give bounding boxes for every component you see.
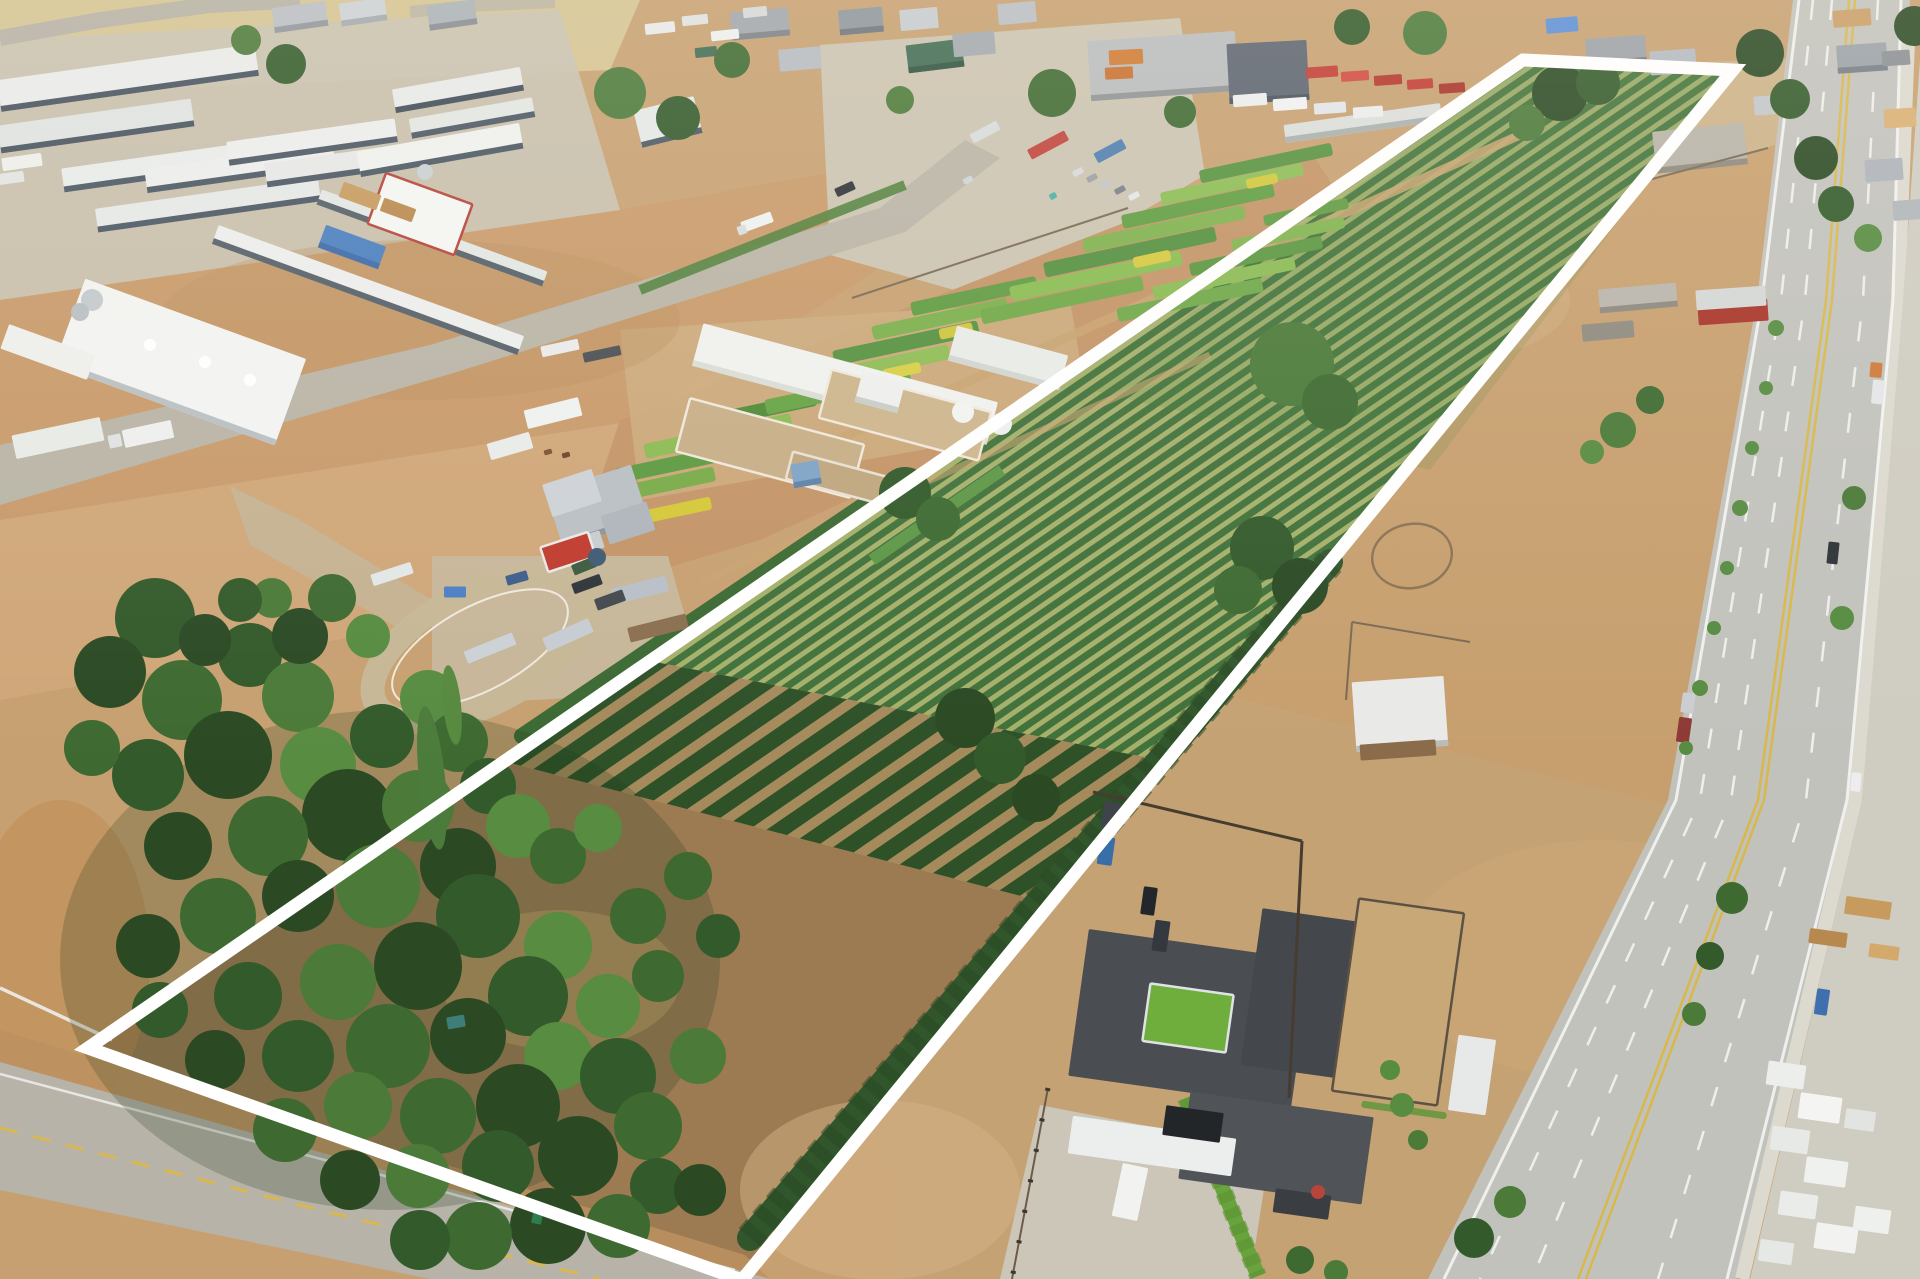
tree xyxy=(320,1150,380,1210)
modern-house xyxy=(1142,983,1233,1052)
tree xyxy=(1494,1186,1526,1218)
lumber-stack xyxy=(1758,1239,1795,1266)
tree xyxy=(610,888,666,944)
tree xyxy=(974,732,1026,784)
tree xyxy=(1600,412,1636,448)
tree xyxy=(656,96,700,140)
house-roof xyxy=(1545,16,1578,34)
tree xyxy=(1164,96,1196,128)
tree xyxy=(1390,1093,1414,1117)
truckyard-building xyxy=(1109,49,1144,66)
house-roof xyxy=(838,7,884,36)
truck-trailer xyxy=(1233,93,1268,107)
house-roof xyxy=(1892,199,1920,221)
tree xyxy=(1854,224,1882,252)
tree xyxy=(1302,374,1358,430)
tree xyxy=(1682,1002,1706,1026)
tree xyxy=(1580,440,1604,464)
tree xyxy=(674,1164,726,1216)
truck-trailer xyxy=(1871,380,1885,405)
lumber-stack xyxy=(1883,107,1916,128)
tree xyxy=(1770,79,1810,119)
tree xyxy=(308,574,356,622)
truck-trailer xyxy=(1353,105,1384,118)
tree xyxy=(1745,441,1759,455)
tree xyxy=(1794,136,1838,180)
tree xyxy=(112,739,184,811)
tree xyxy=(1214,566,1262,614)
truck-trailer xyxy=(1374,74,1403,86)
tree xyxy=(1679,741,1693,755)
silo xyxy=(71,303,89,321)
tree xyxy=(1509,105,1545,141)
tree xyxy=(116,914,180,978)
tree xyxy=(886,86,914,114)
tree xyxy=(1707,621,1721,635)
tree xyxy=(214,962,282,1030)
tree xyxy=(1696,942,1724,970)
tree xyxy=(538,1116,618,1196)
tree xyxy=(714,42,750,78)
truck-trailer xyxy=(444,587,466,598)
house-roof xyxy=(778,46,822,72)
truck-trailer xyxy=(695,46,718,58)
truck-trailer xyxy=(682,14,709,27)
lumber-stack xyxy=(1844,1108,1876,1132)
tree xyxy=(576,974,640,1038)
tree xyxy=(184,711,272,799)
truck-trailer xyxy=(1439,82,1466,94)
tree xyxy=(632,950,684,1002)
tree xyxy=(1380,1060,1400,1080)
tree xyxy=(336,844,420,928)
truck-trailer xyxy=(107,433,122,448)
tree xyxy=(400,1078,476,1154)
tree xyxy=(231,25,261,55)
tree xyxy=(574,804,622,852)
tree xyxy=(266,44,306,84)
tree xyxy=(444,1202,512,1270)
house-roof xyxy=(952,31,996,58)
truck-trailer xyxy=(1273,97,1308,111)
tree xyxy=(1028,69,1076,117)
greenhouse-arch-end xyxy=(952,401,974,423)
tree xyxy=(1768,320,1784,336)
lumber-stack xyxy=(1853,1206,1892,1235)
tree xyxy=(74,636,146,708)
truckyard-building xyxy=(1226,40,1309,104)
house-roof xyxy=(1836,42,1888,73)
tree xyxy=(1408,1130,1428,1150)
rooftop-hvac xyxy=(199,356,211,368)
tree xyxy=(1732,500,1748,516)
house-roof xyxy=(997,1,1037,25)
tree xyxy=(374,922,462,1010)
greenhouse xyxy=(790,460,822,488)
tree xyxy=(262,660,334,732)
trampoline xyxy=(588,548,606,566)
tree xyxy=(350,704,414,768)
tree xyxy=(1403,11,1447,55)
truck-trailer xyxy=(1306,65,1339,78)
tree xyxy=(144,812,212,880)
tree xyxy=(300,944,376,1020)
patio-umbrella xyxy=(1311,1185,1325,1199)
tree xyxy=(664,852,712,900)
lumber-stack xyxy=(1882,50,1911,67)
tree xyxy=(1012,774,1060,822)
tree xyxy=(696,914,740,958)
tree xyxy=(916,497,960,541)
rooftop-hvac xyxy=(244,374,256,386)
silo xyxy=(417,164,433,180)
tree xyxy=(1736,29,1784,77)
aerial-photo xyxy=(0,0,1920,1279)
tree xyxy=(64,720,120,776)
truckyard-building xyxy=(1105,66,1134,79)
house-roof xyxy=(899,7,939,31)
truck-trailer xyxy=(645,21,676,35)
truckyard-building xyxy=(1087,31,1239,101)
tree xyxy=(1454,1218,1494,1258)
tree xyxy=(346,614,390,658)
tree xyxy=(1842,486,1866,510)
truck-trailer xyxy=(1869,362,1882,378)
tree xyxy=(218,578,262,622)
tree xyxy=(1759,381,1773,395)
tree xyxy=(1818,186,1854,222)
tree xyxy=(670,1028,726,1084)
tree xyxy=(1830,606,1854,630)
screenshot xyxy=(0,0,1920,1279)
tree xyxy=(1636,386,1664,414)
tree xyxy=(390,1210,450,1270)
tree xyxy=(614,1092,682,1160)
rooftop-hvac xyxy=(144,339,156,351)
tree xyxy=(430,998,506,1074)
tree xyxy=(594,67,646,119)
house-roof xyxy=(1864,158,1903,183)
tree xyxy=(1720,561,1734,575)
lumber-stack xyxy=(1832,8,1871,28)
truck-trailer xyxy=(1407,78,1434,90)
truck-trailer xyxy=(1826,541,1839,564)
truck-trailer xyxy=(1341,70,1370,82)
tree xyxy=(179,614,231,666)
truck-trailer xyxy=(1314,101,1347,114)
tree xyxy=(1334,9,1370,45)
tree xyxy=(1286,1246,1314,1274)
tree xyxy=(262,1020,334,1092)
truck-trailer xyxy=(1680,692,1696,714)
tree xyxy=(1692,680,1708,696)
truck-trailer xyxy=(1850,772,1862,792)
tree xyxy=(1716,882,1748,914)
